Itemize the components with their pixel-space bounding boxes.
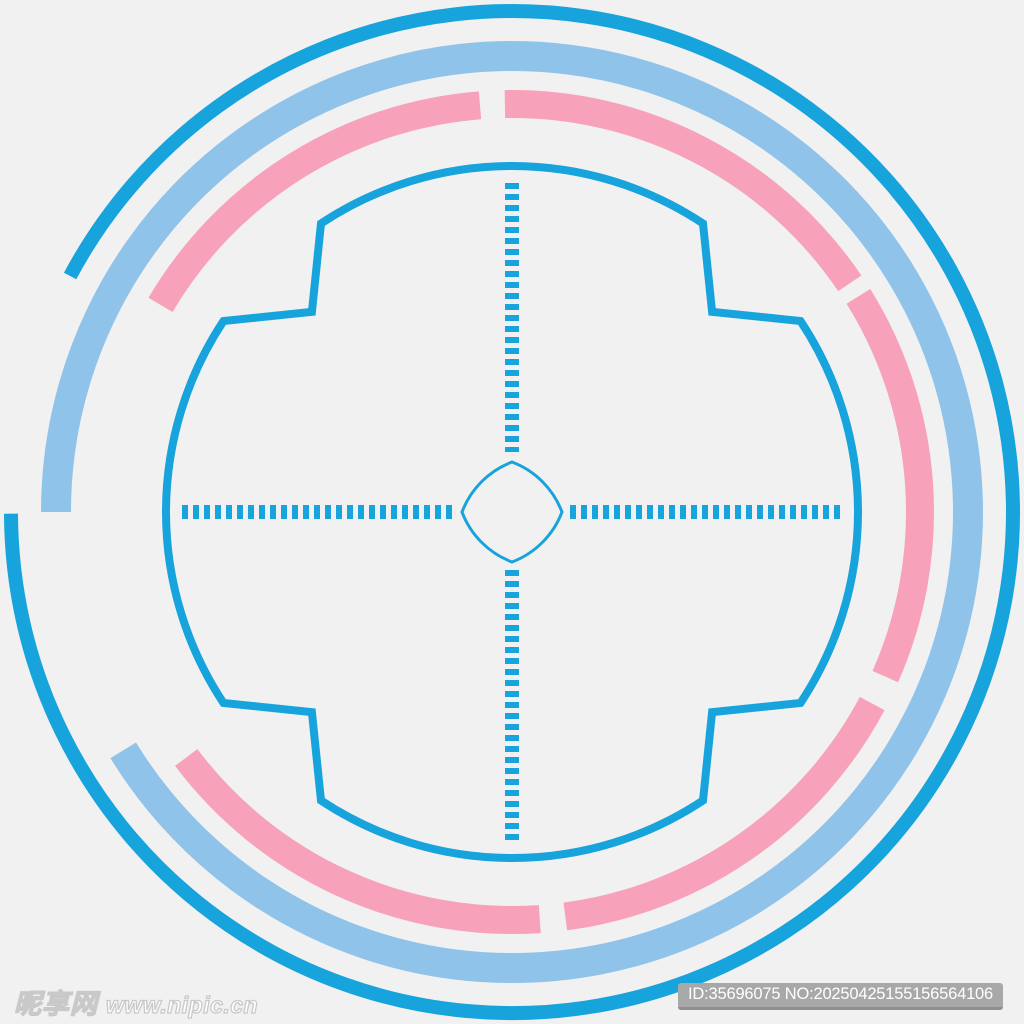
outer-blue-ring-segment-1 <box>11 11 1013 1013</box>
watermark-site: 昵享网 www.nipic.cn <box>14 982 258 1021</box>
light-blue-ring-segment-1 <box>56 56 968 968</box>
center-star-outline <box>462 462 562 562</box>
pink-ring-segment-1 <box>161 105 481 305</box>
image-id-badge: ID:35696075 NO:20250425155156564106 <box>678 983 1003 1010</box>
pink-ring-segment-4 <box>565 704 872 917</box>
pink-ring-segment-3 <box>858 296 920 676</box>
reticle-outline <box>166 166 858 858</box>
hud-graphic-canvas: 昵享网 www.nipic.cn ID:35696075 NO:20250425… <box>0 0 1024 1024</box>
hud-circle-graphic <box>0 0 1024 1024</box>
pink-ring-segment-2 <box>505 104 850 283</box>
watermark-site-logo: 昵享网 <box>14 982 98 1021</box>
watermark-site-url: www.nipic.cn <box>106 992 258 1019</box>
